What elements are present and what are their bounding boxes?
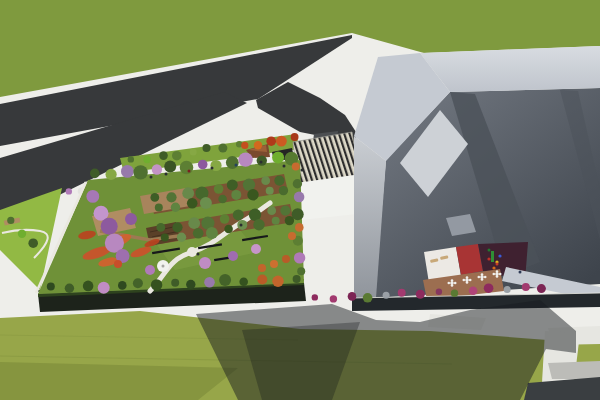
plaza-green-tree-row (218, 144, 227, 153)
orchard-row-2b (253, 219, 264, 230)
lime-strip-tree-row (7, 217, 14, 224)
garden-tree (228, 251, 238, 261)
garden-top-tree-row (226, 156, 239, 169)
garden-bottom-tree-row (65, 284, 74, 293)
cafe-chair (478, 276, 481, 279)
street-bush-row (451, 290, 458, 297)
garden-top-tree-row (198, 160, 208, 170)
garden-tree (270, 260, 278, 268)
garden-bottom-tree-row (133, 278, 143, 288)
northwest-bush-row (66, 188, 72, 194)
orchard-row-2b (272, 217, 280, 225)
garden-bottom-tree-row (239, 277, 248, 286)
cafe-chair (469, 279, 472, 282)
gazebo-center (162, 265, 165, 268)
cafe-chair (484, 276, 487, 279)
cafe-chair (451, 279, 454, 282)
person (519, 271, 522, 274)
person (150, 176, 153, 179)
garden-top-tree-row (121, 165, 134, 178)
orchard-row-2b (177, 233, 186, 242)
building-parapet-top (420, 46, 600, 92)
south-grass-dark-patch (0, 362, 238, 400)
street-bush-row (537, 284, 546, 293)
orchard-row-1a (274, 176, 284, 186)
orchard-row-1a (261, 176, 270, 185)
orchard-row-2a (233, 209, 244, 220)
garden-bottom-tree-row (219, 274, 231, 286)
play-equipment (492, 266, 495, 269)
garden-top-tree-row (180, 161, 194, 175)
garden-top-tree-row (272, 152, 284, 164)
entrance-canopy-roof (296, 175, 357, 220)
street-bush-row (522, 283, 530, 291)
orchard-row-1b (200, 197, 212, 209)
person (240, 224, 243, 227)
lime-strip-tree-row (28, 238, 38, 248)
cafe-chair (496, 275, 499, 278)
south-field-group (0, 300, 600, 400)
garden-top-tree-row (238, 152, 252, 166)
person (235, 164, 238, 167)
orchard-row-1b (266, 187, 274, 195)
orchard-row-1a (182, 187, 194, 199)
person (260, 161, 263, 164)
garden-bottom-tree-row (83, 281, 94, 292)
street-bush-row (504, 286, 511, 293)
garden-right-tree-row (295, 223, 304, 232)
garden-tree (114, 260, 122, 268)
street-bush-row (312, 294, 318, 300)
orchard-row-1a (150, 193, 159, 202)
garden-top-tree-row (133, 165, 147, 179)
cafe-chair (466, 276, 469, 279)
orchard-row-1b (231, 190, 241, 200)
orchard-row-2a (220, 214, 230, 224)
play-equipment (498, 254, 501, 257)
cafe-chair (448, 282, 451, 285)
orchard-row-2a (172, 222, 182, 232)
garden-tree (199, 257, 211, 269)
orchard-row-2a (267, 206, 276, 215)
garden-left-blossom-row (86, 190, 99, 203)
garden-top-tree-row (90, 169, 100, 179)
orchard-row-2b (224, 225, 233, 234)
garden-bottom-tree-row (151, 279, 162, 290)
render-stage (0, 0, 600, 400)
orchard-row-1a (214, 184, 224, 194)
street-bush-row (398, 289, 406, 297)
plaza-green-tree-row (203, 144, 211, 152)
orchard-row-2a (156, 223, 165, 232)
person (188, 170, 191, 173)
orchard-row-1b (187, 198, 198, 209)
orchard-row-2a (280, 206, 290, 216)
garden-bottom-tree-row (272, 276, 283, 287)
garden-tree (145, 265, 155, 275)
garden-bottom-tree-row (47, 282, 55, 290)
garden-bottom-tree-row (293, 275, 301, 283)
plaza-green-tree-row (143, 156, 150, 163)
orchard-row-1a (166, 192, 176, 202)
garden-top-tree-row (257, 155, 267, 165)
garden-top-tree-row (164, 161, 176, 173)
garden-right-tree-row (292, 162, 300, 170)
garden-right-tree-row (297, 267, 305, 275)
cafe-chair (454, 282, 457, 285)
plaza-orange-tree-row (266, 136, 276, 146)
garden-tree (282, 255, 290, 263)
cafe-chair (496, 270, 499, 273)
garden-bottom-tree-row (257, 275, 267, 285)
garden-tree (125, 213, 137, 225)
orchard-row-1b (247, 189, 258, 200)
orchard-row-2a (188, 217, 200, 229)
person (488, 249, 491, 252)
orchard-row-1a (227, 179, 238, 190)
garden-top-tree-row (152, 164, 162, 174)
garden-left-blossom-row (101, 218, 118, 235)
orchard-row-2b (161, 233, 169, 241)
orchard-row-2b (193, 228, 204, 239)
garden-bottom-tree-row (204, 277, 215, 288)
person (197, 253, 200, 256)
plaza-orange-tree-row (241, 142, 248, 149)
plaza-green-tree-row (128, 156, 134, 162)
lime-strip-tree-row (18, 230, 26, 238)
garden-bottom-tree-row (171, 279, 179, 287)
orchard-row-1b (218, 195, 227, 204)
street-bush-row (416, 290, 425, 299)
play-equipment (491, 251, 494, 262)
plaza-green-tree-row (172, 151, 182, 161)
garden-right-tree-row (294, 252, 305, 263)
person (165, 173, 168, 176)
street-bush-row (469, 286, 478, 295)
cafe-chair (481, 273, 484, 276)
garden-right-tree-row (294, 192, 305, 203)
aerial-render-canvas (0, 0, 600, 400)
plaza-orange-tree-row (254, 141, 262, 149)
plaza-orange-tree-row (291, 133, 299, 141)
garden-tree (258, 264, 266, 272)
cafe-chair (466, 281, 469, 284)
person (211, 167, 214, 170)
street-bush-row (330, 295, 337, 302)
street-bush-row (383, 292, 390, 299)
orchard-row-1b (171, 203, 180, 212)
garden-top-tree-row (106, 169, 117, 180)
play-equipment (487, 257, 490, 260)
garden-bottom-tree-row (98, 282, 110, 294)
orchard-row-2b (206, 227, 218, 239)
cafe-chair (451, 284, 454, 287)
garden-tree (251, 244, 261, 254)
street-bush-row (348, 292, 357, 301)
orchard-row-2b (285, 216, 294, 225)
path-node-plaza (187, 247, 197, 257)
person (301, 169, 304, 172)
person (283, 165, 286, 168)
street-bush-row (436, 289, 442, 295)
plaza-orange-tree-row (276, 136, 287, 147)
garden-tree (288, 232, 296, 240)
walkway-d-shaded (548, 361, 600, 379)
cafe-chair (481, 278, 484, 281)
garden-right-tree-row (293, 179, 302, 188)
street-bush-row (363, 293, 373, 303)
plaza-green-tree-row (159, 151, 168, 160)
cafe-chair (493, 273, 496, 276)
person (496, 263, 499, 266)
cafe-chair (499, 273, 502, 276)
orchard-row-1b (279, 186, 288, 195)
street-bush-row (484, 283, 494, 293)
garden-bottom-tree-row (186, 280, 195, 289)
orchard-row-1b (155, 203, 163, 211)
cafe-chair (463, 279, 466, 282)
plaza-green-tree-row (190, 148, 197, 155)
garden-bottom-tree-row (118, 281, 127, 290)
